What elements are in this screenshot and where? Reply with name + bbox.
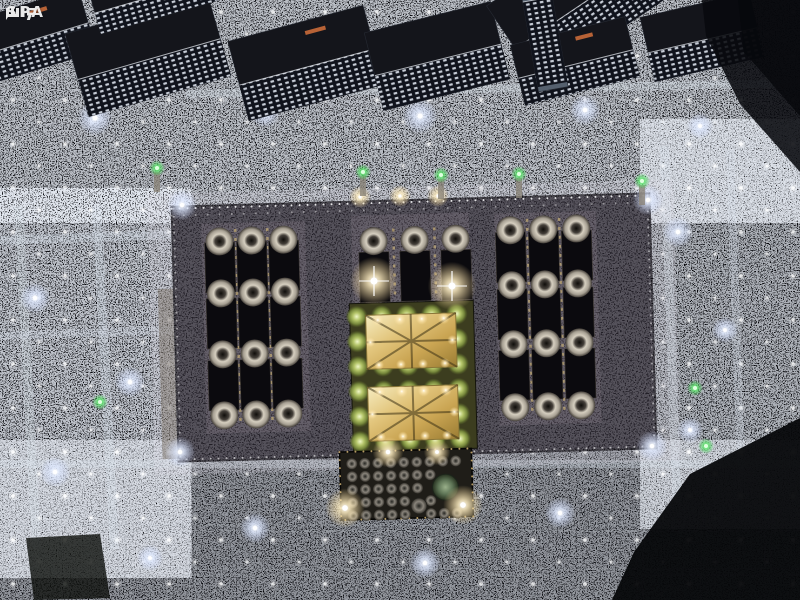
minaret-green-light xyxy=(361,170,365,174)
light-point xyxy=(53,470,57,474)
light-point xyxy=(33,296,37,300)
light-point xyxy=(180,203,184,207)
light-point xyxy=(460,502,466,508)
minaret-green-light xyxy=(98,400,102,404)
minaret-green-light xyxy=(439,173,443,177)
light-point xyxy=(148,556,152,560)
flare-horizontal xyxy=(437,285,467,287)
dark-street xyxy=(26,534,110,600)
minaret-green-light xyxy=(693,386,697,390)
minaret-green-light xyxy=(155,166,159,170)
light-point xyxy=(417,113,422,118)
photo-scene-canvas xyxy=(0,0,800,600)
minaret-green-light xyxy=(704,444,708,448)
light-point xyxy=(128,380,132,384)
spa-watermark: SPA xyxy=(6,4,46,20)
light-point xyxy=(435,450,439,454)
light-point xyxy=(650,444,654,448)
light-point xyxy=(583,108,587,112)
open-courtyard xyxy=(400,251,431,302)
flare-horizontal xyxy=(359,280,389,282)
light-point xyxy=(423,561,427,565)
light-point xyxy=(723,328,727,332)
aerial-night-photo: SPA xyxy=(0,0,800,600)
light-point xyxy=(558,511,562,515)
grey-dome xyxy=(411,498,427,514)
light-point xyxy=(253,526,257,530)
minaret-green-light xyxy=(517,172,521,176)
light-point xyxy=(178,450,182,454)
light-point xyxy=(92,115,97,120)
minaret-green-light xyxy=(640,179,644,183)
light-point xyxy=(646,198,650,202)
light-point xyxy=(386,450,390,454)
light-point xyxy=(398,194,401,197)
light-point xyxy=(676,230,680,234)
light-point xyxy=(342,505,348,511)
light-point xyxy=(688,428,692,432)
watermark-arabic-logo xyxy=(6,4,46,21)
light-point xyxy=(698,124,702,128)
